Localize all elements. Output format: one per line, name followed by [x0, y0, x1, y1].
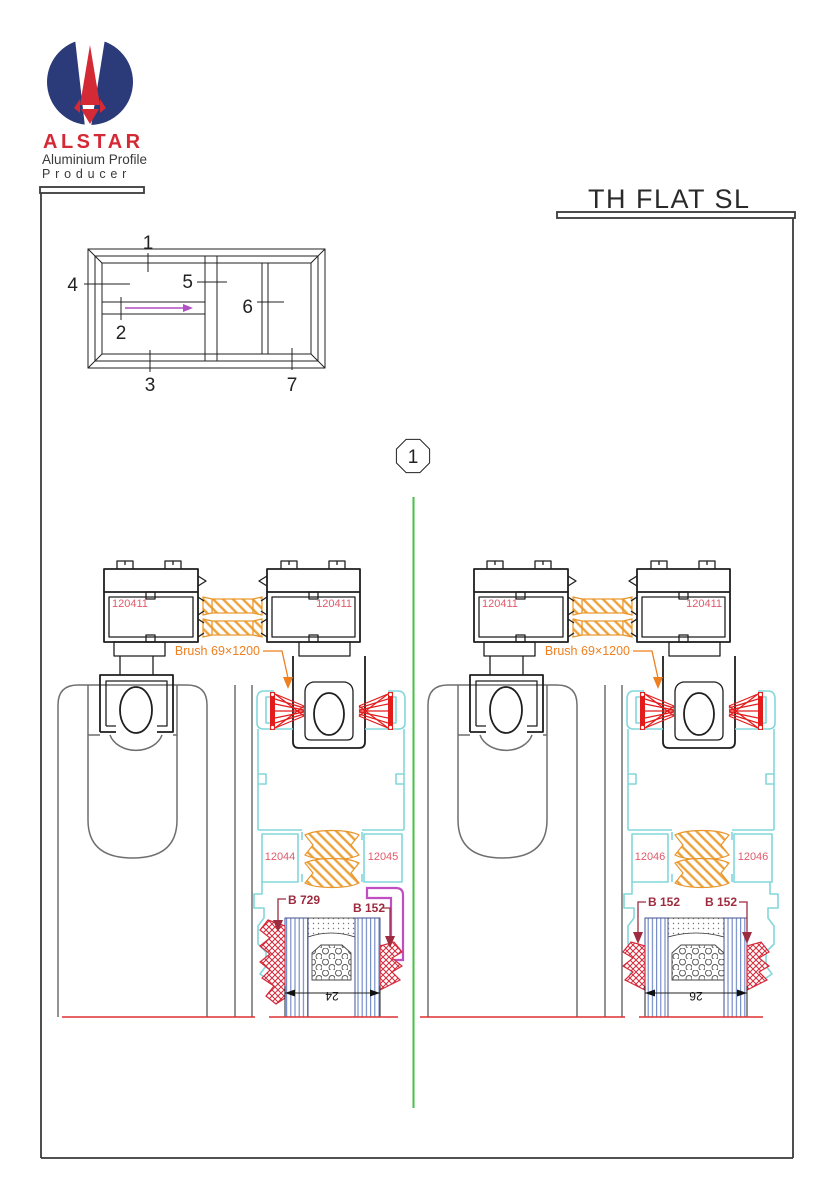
- gasket-left: [623, 942, 645, 990]
- drawing-sheet: ALSTAR Aluminium Profile Producer TH FLA…: [0, 0, 829, 1200]
- detail-view-2: 120411 120411 Brush 69×1200 12046 12046 …: [420, 561, 778, 1017]
- profile-label-right: 120411: [686, 598, 722, 610]
- slide-direction-arrow: [125, 304, 193, 312]
- profile-label-left: 120411: [482, 598, 518, 610]
- brush-callout: Brush 69×1200: [545, 644, 663, 689]
- callout-3: 3: [145, 375, 156, 396]
- brush-callout: Brush 69×1200: [175, 644, 293, 689]
- drawing-canvas: ALSTAR Aluminium Profile Producer TH FLA…: [0, 0, 829, 1200]
- brand-logo: ALSTAR Aluminium Profile Producer: [42, 39, 147, 181]
- section-marker-number: 1: [408, 447, 419, 468]
- callout-4: 4: [67, 275, 78, 296]
- svg-text:B 152: B 152: [648, 895, 680, 909]
- profile-label-left: 120411: [112, 598, 148, 610]
- section-marker: 1: [396, 439, 429, 472]
- profile-label-right: 120411: [316, 598, 352, 610]
- gasket-right: [380, 942, 402, 990]
- insert-label-right: 12046: [738, 851, 769, 863]
- brand-subtitle-2: Producer: [42, 167, 131, 181]
- window-schematic: 1 2 3 4 5 6 7: [67, 233, 325, 396]
- callout-6: 6: [242, 297, 253, 318]
- insert-label-right: 12045: [368, 851, 399, 863]
- callout-1: 1: [143, 233, 154, 254]
- gasket-right: [747, 942, 769, 990]
- detail-view-1: 120411 120411 Brush 69×1200 12044 12045 …: [58, 561, 405, 1017]
- svg-text:B 729: B 729: [288, 893, 320, 907]
- dimension-text: 26: [689, 989, 703, 1003]
- svg-text:B 152: B 152: [705, 895, 737, 909]
- callout-2: 2: [116, 323, 127, 344]
- callout-7: 7: [287, 375, 298, 396]
- gasket-left: [260, 920, 285, 1004]
- svg-text:Brush 69×1200: Brush 69×1200: [545, 644, 630, 658]
- insert-label-left: 12044: [265, 851, 296, 863]
- svg-text:B 152: B 152: [353, 901, 385, 915]
- dimension-text: 24: [325, 989, 339, 1003]
- svg-text:Brush 69×1200: Brush 69×1200: [175, 644, 260, 658]
- brand-subtitle: Aluminium Profile: [42, 152, 147, 167]
- page-title: TH FLAT SL: [588, 184, 751, 214]
- brand-name: ALSTAR: [43, 131, 144, 153]
- callout-5: 5: [182, 272, 193, 293]
- insert-label-left: 12046: [635, 851, 666, 863]
